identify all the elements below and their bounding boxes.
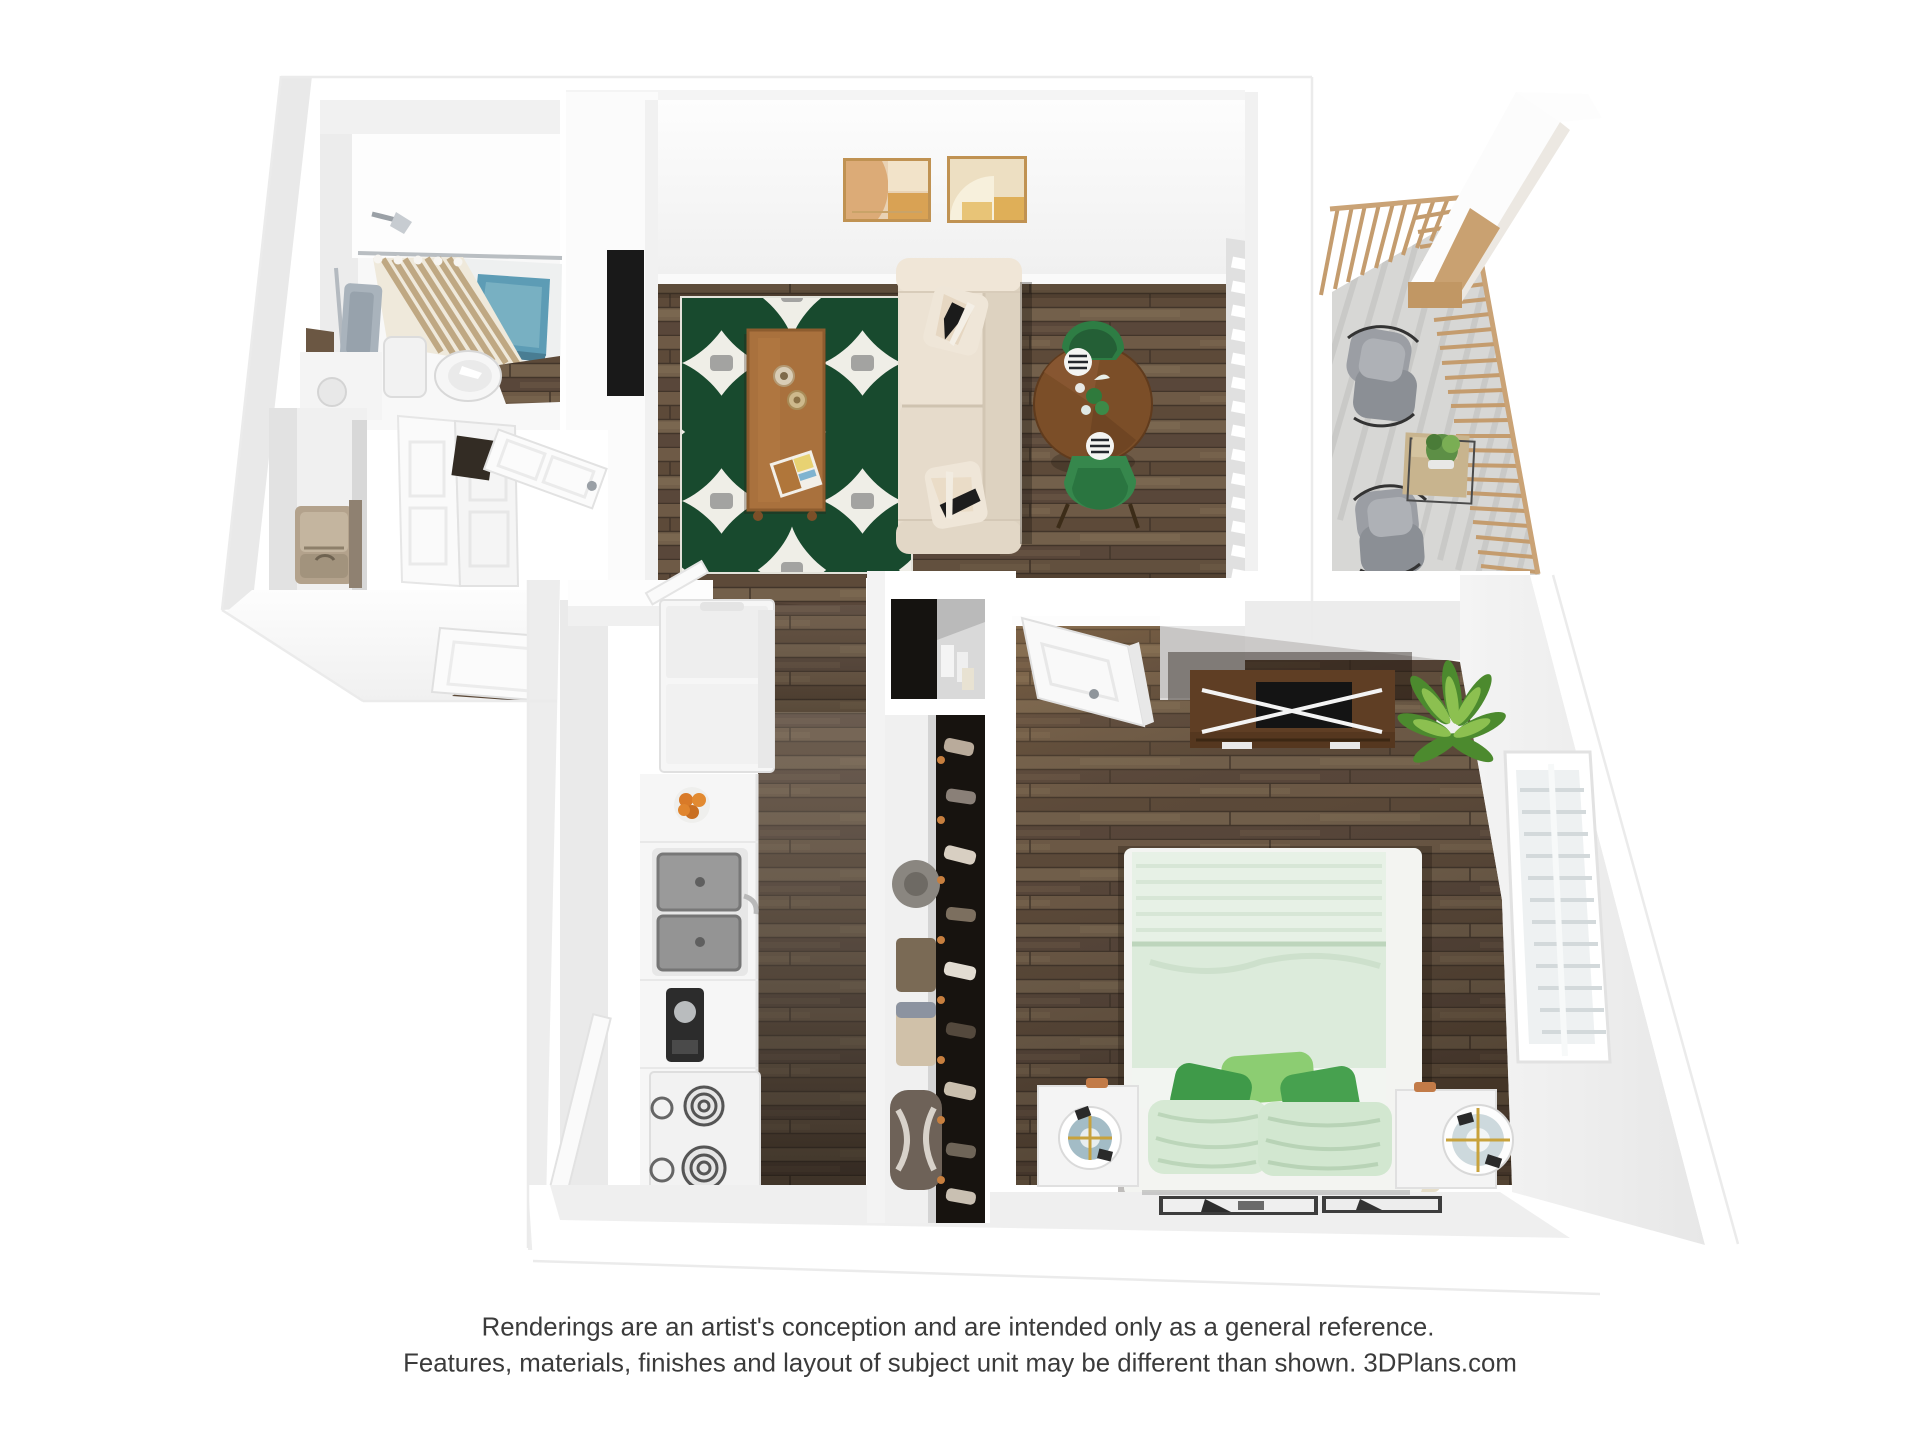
svg-text:Renderings are an artist's con: Renderings are an artist's conception an… — [482, 1314, 1435, 1342]
svg-text:Features, materials, finishes: Features, materials, finishes and layout… — [403, 1350, 1517, 1378]
